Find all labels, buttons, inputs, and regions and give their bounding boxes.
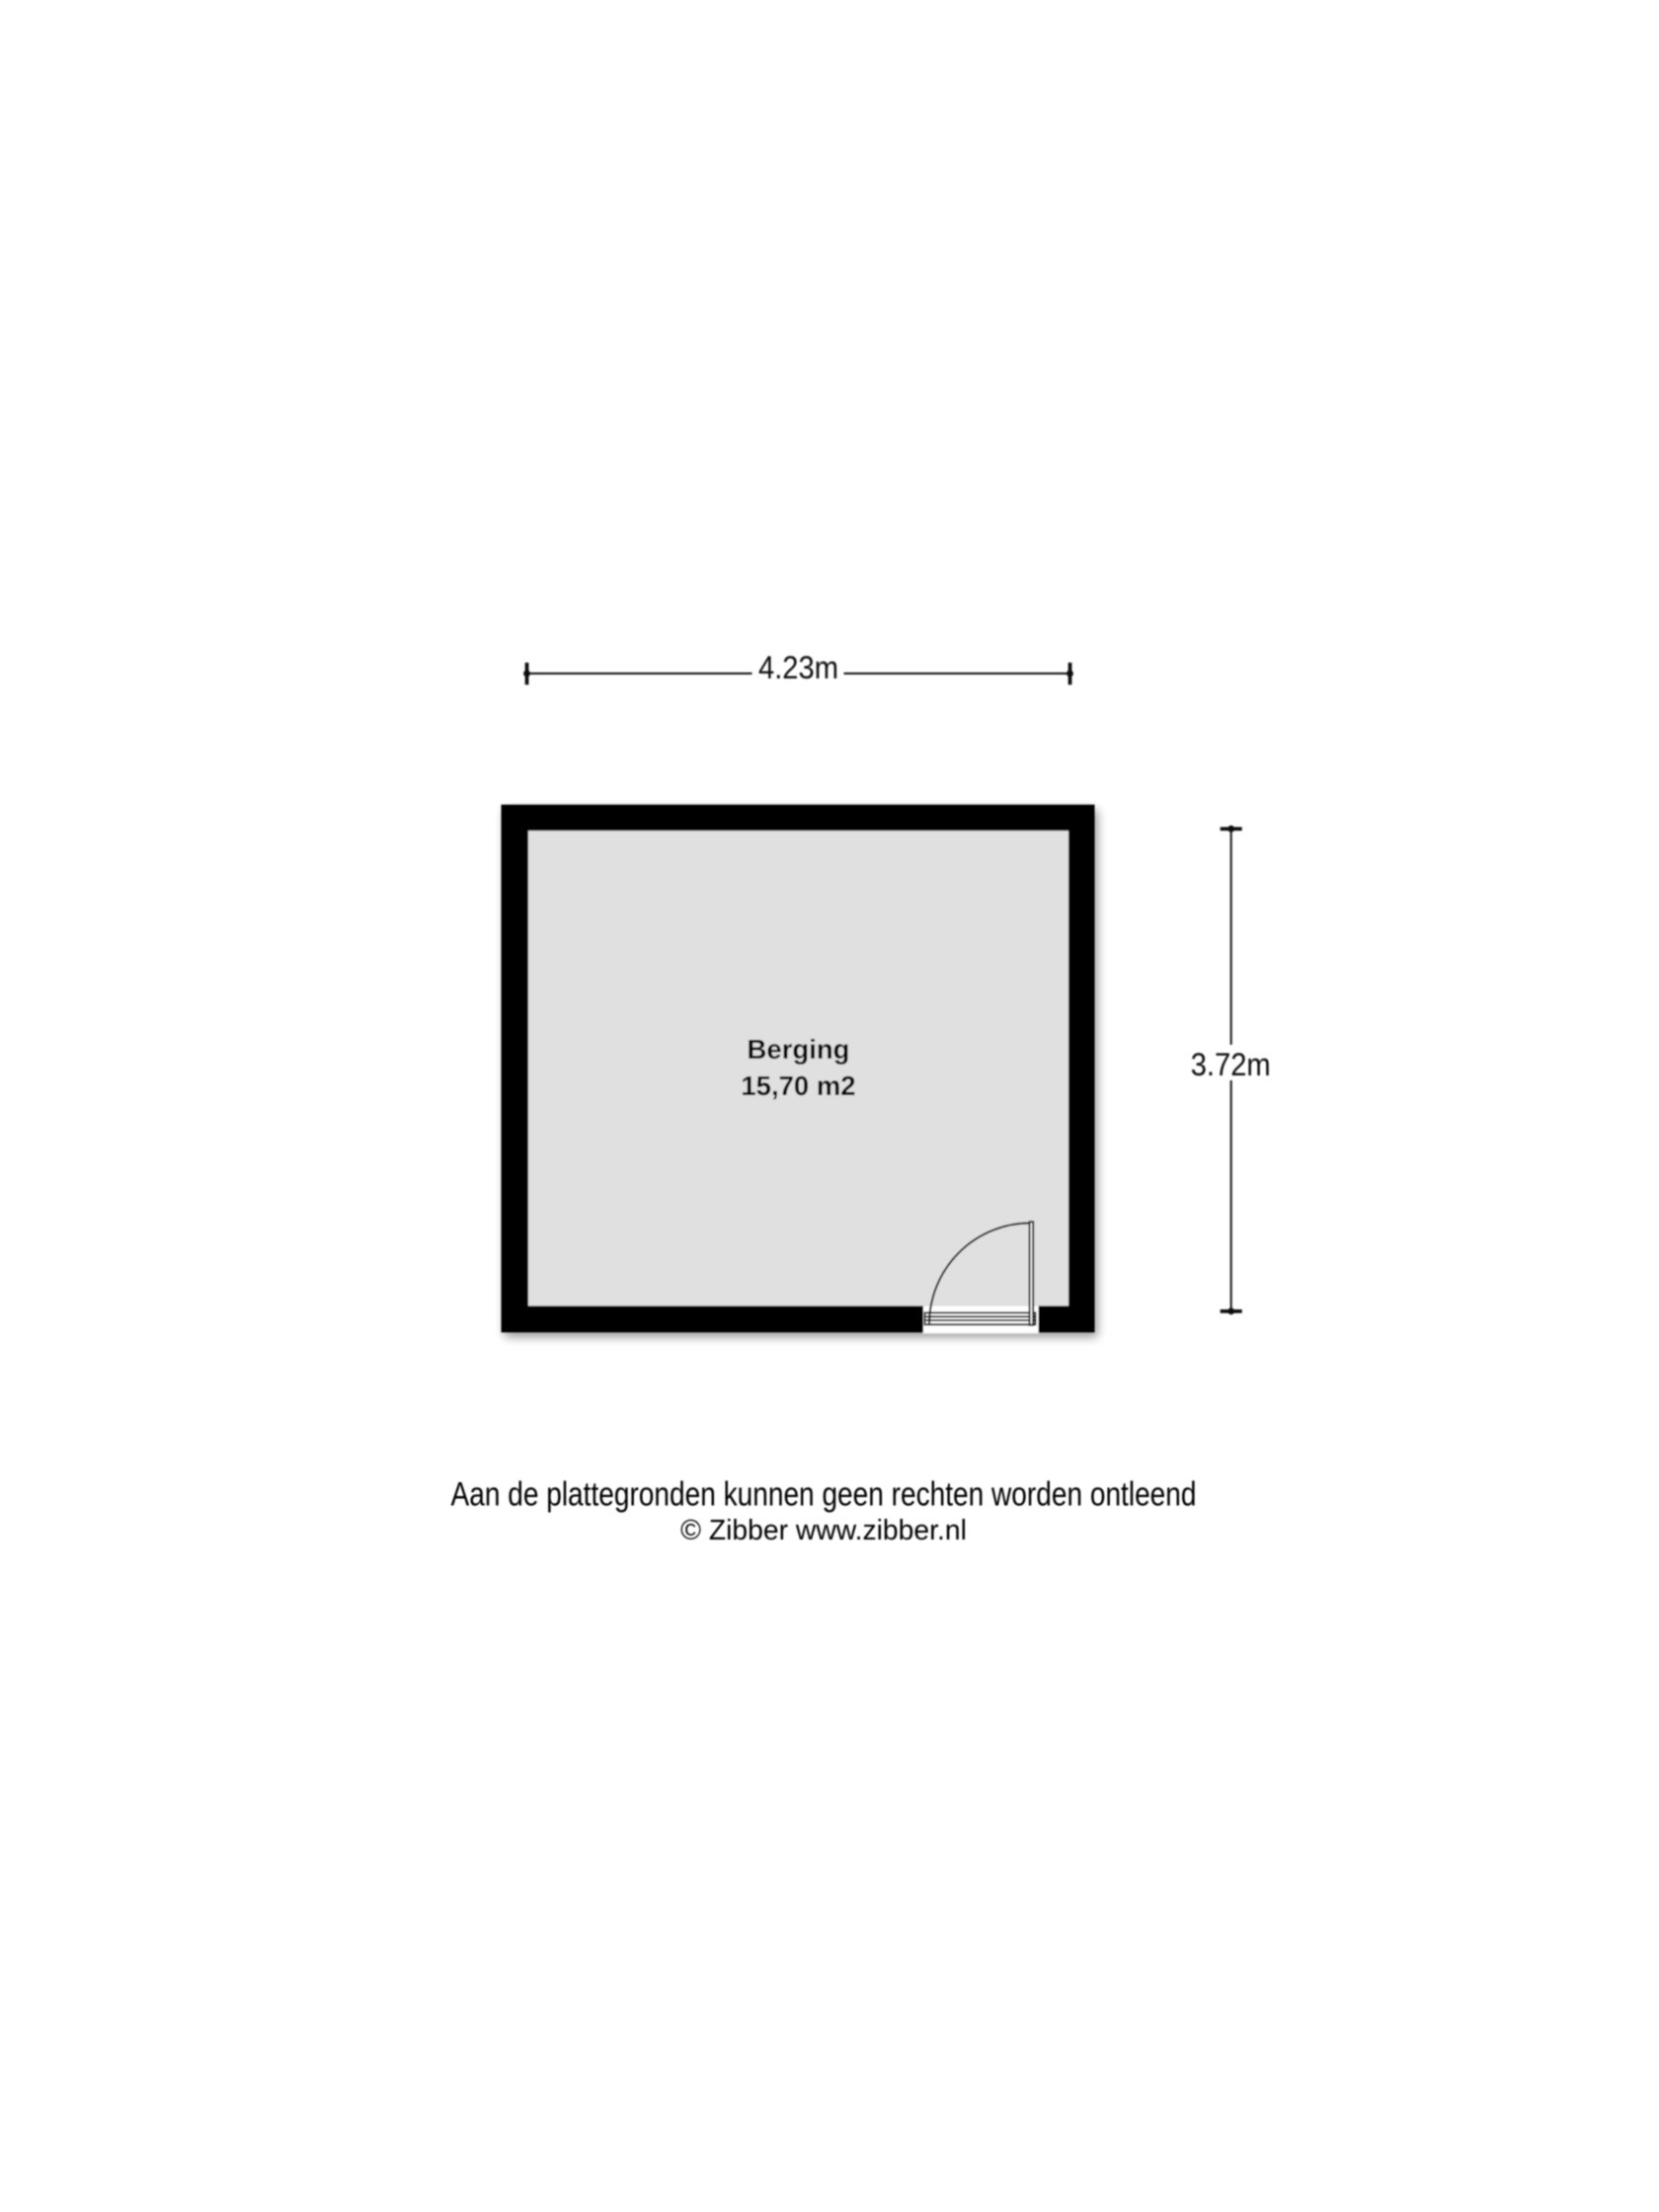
svg-text:Berging: Berging: [748, 1034, 850, 1065]
svg-text:3.72m: 3.72m: [1191, 1047, 1271, 1082]
svg-text:© Zibber www.zibber.nl: © Zibber www.zibber.nl: [680, 1514, 967, 1545]
svg-text:4.23m: 4.23m: [758, 650, 838, 685]
svg-text:15,70 m2: 15,70 m2: [741, 1070, 855, 1101]
svg-text:Aan de plattegronden kunnen ge: Aan de plattegronden kunnen geen rechten…: [451, 1476, 1197, 1514]
